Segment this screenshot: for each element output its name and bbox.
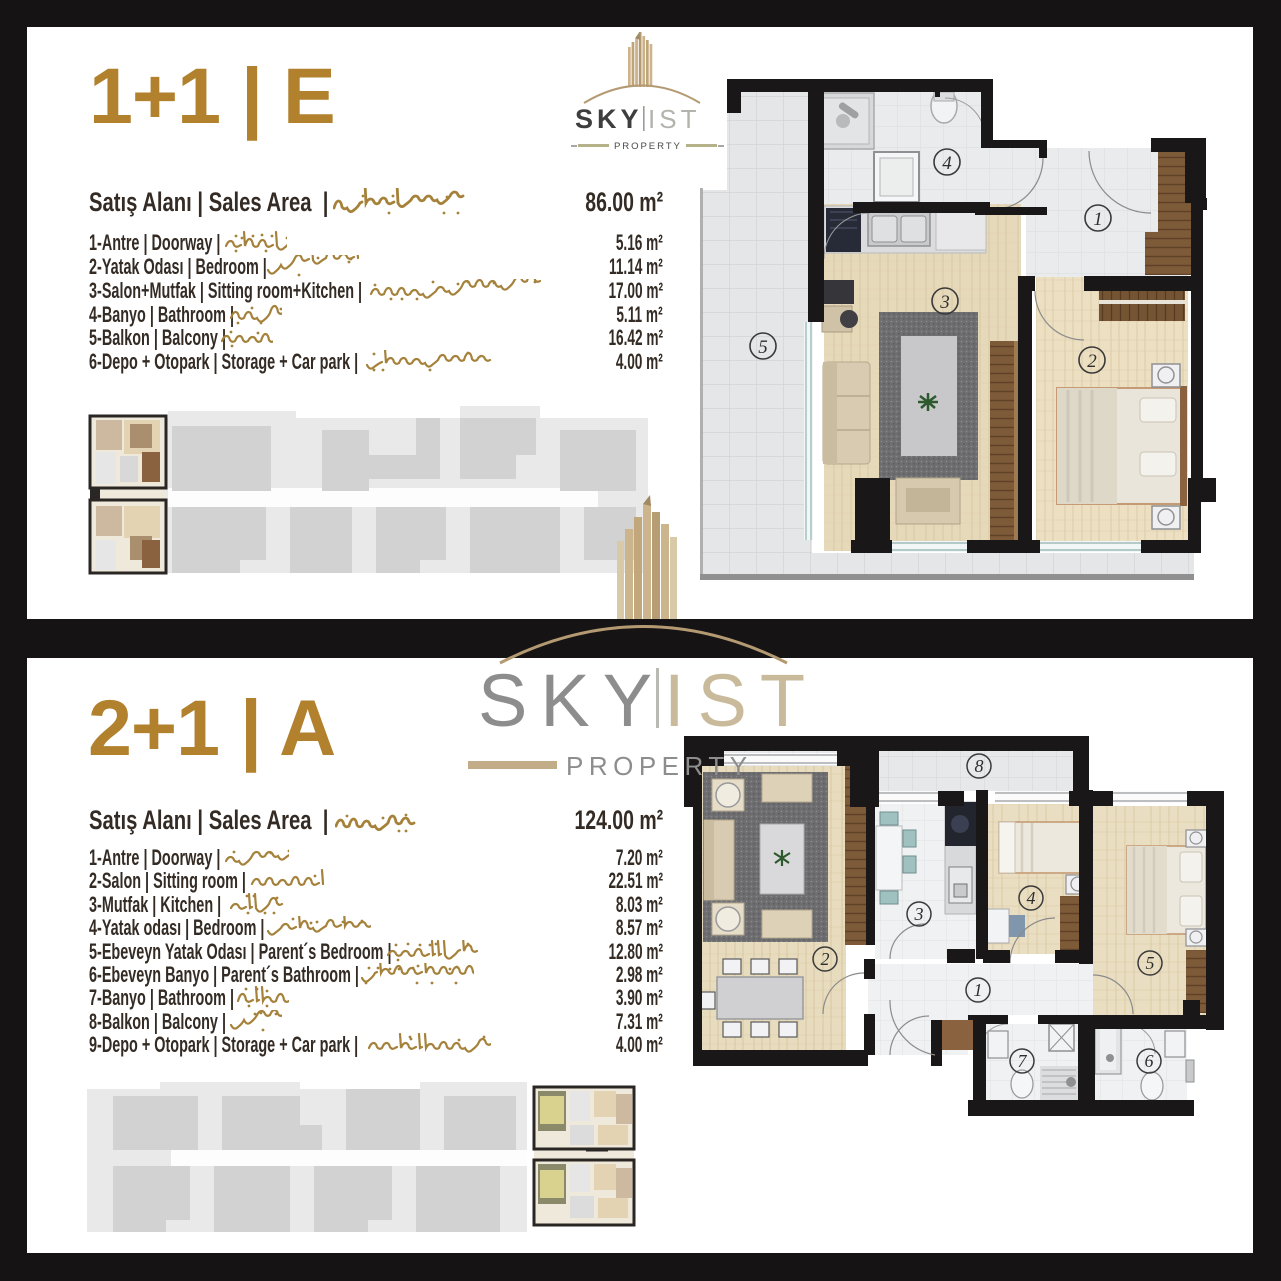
svg-text:1: 1 [974,980,983,1000]
svg-text:PROPERTY: PROPERTY [614,141,682,152]
svg-text:8: 8 [975,756,984,776]
svg-text:3: 3 [939,292,950,313]
svg-text:2: 2 [1087,351,1097,372]
svg-text:2: 2 [821,949,830,969]
svg-text:4: 4 [1027,888,1036,908]
svg-text:SKY: SKY [478,659,665,742]
svg-text:5: 5 [758,337,768,358]
svg-text:IST: IST [664,659,818,742]
svg-text:5: 5 [1146,953,1155,973]
svg-text:PROPERTY: PROPERTY [566,751,753,781]
svg-text:1: 1 [1093,209,1103,230]
svg-text:4: 4 [942,153,952,174]
svg-text:3: 3 [914,904,924,924]
svg-text:6: 6 [1145,1051,1154,1071]
svg-text:7: 7 [1018,1051,1028,1071]
svg-text:SKY: SKY [575,104,643,134]
